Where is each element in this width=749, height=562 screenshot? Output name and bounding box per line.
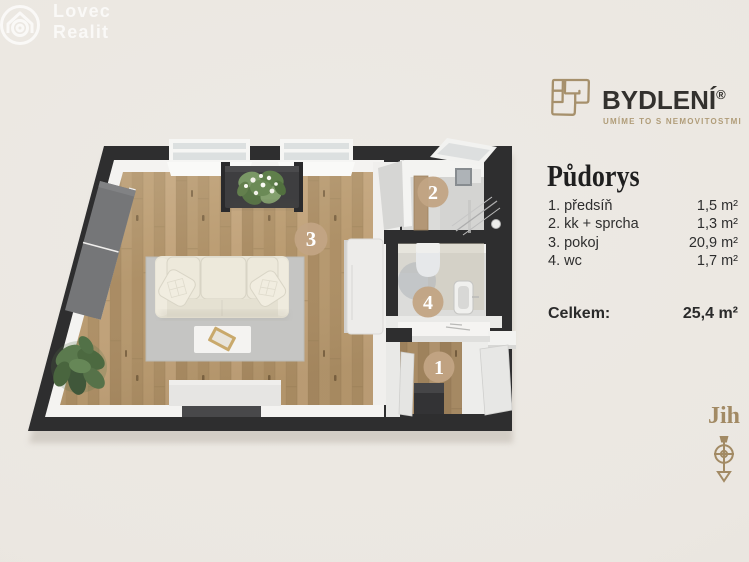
svg-text:4: 4 (423, 292, 433, 314)
svg-text:2: 2 (428, 182, 438, 204)
svg-text:3: 3 (306, 227, 317, 251)
svg-text:1: 1 (434, 357, 444, 379)
